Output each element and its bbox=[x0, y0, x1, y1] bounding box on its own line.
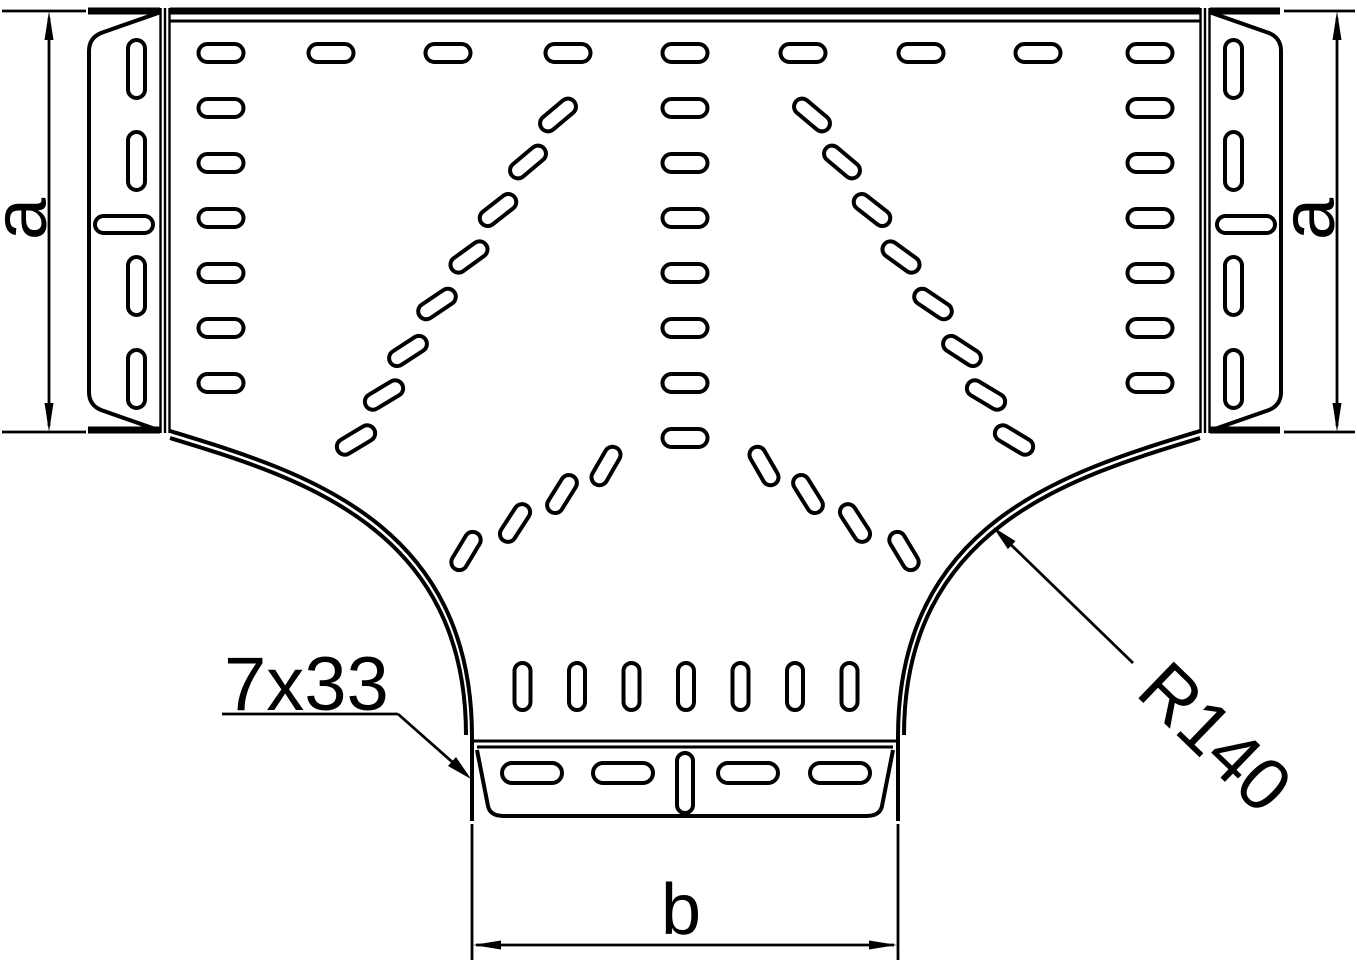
left-joint-lines bbox=[161, 8, 170, 433]
arrowhead-up bbox=[1333, 11, 1342, 40]
slot bbox=[386, 333, 430, 369]
slot bbox=[1225, 257, 1242, 315]
slot bbox=[1128, 319, 1173, 337]
slot bbox=[1128, 374, 1173, 392]
slot bbox=[787, 663, 803, 710]
tee-fitting-drawing: a a b 7x33 R140 bbox=[0, 0, 1357, 967]
slot bbox=[569, 663, 585, 710]
slot bbox=[791, 95, 833, 134]
slot bbox=[199, 264, 244, 282]
slot bbox=[1225, 132, 1242, 190]
dim-b-label: b bbox=[661, 870, 701, 950]
slot bbox=[911, 286, 955, 323]
slot bbox=[837, 501, 873, 545]
radius-callout-label: R140 bbox=[1123, 646, 1308, 829]
slot bbox=[128, 350, 145, 408]
slot bbox=[448, 529, 483, 573]
slot bbox=[309, 44, 354, 62]
right-diagonal-ray-slots bbox=[791, 95, 1036, 457]
right-fan-slots bbox=[747, 444, 922, 573]
callout-r140: R140 bbox=[993, 527, 1308, 828]
slot bbox=[546, 44, 591, 62]
slot bbox=[1128, 154, 1173, 172]
slot bbox=[502, 763, 562, 783]
arrowhead-left bbox=[473, 941, 501, 950]
arrowhead-right bbox=[869, 941, 897, 950]
slot bbox=[718, 763, 778, 783]
slot bbox=[733, 663, 749, 710]
slot bbox=[95, 216, 153, 233]
slot bbox=[1128, 264, 1173, 282]
slot bbox=[879, 238, 922, 276]
slot bbox=[1128, 209, 1173, 227]
slot bbox=[199, 99, 244, 117]
slot bbox=[515, 663, 531, 710]
slot bbox=[678, 663, 694, 710]
left-fan-slots bbox=[448, 444, 623, 573]
slot bbox=[842, 663, 858, 710]
slot bbox=[663, 429, 708, 447]
dim-a-right-label: a bbox=[1266, 197, 1351, 240]
slot bbox=[992, 422, 1036, 457]
right-joint-lines bbox=[1201, 8, 1210, 433]
slot bbox=[781, 44, 826, 62]
slot bbox=[415, 286, 459, 323]
slot bbox=[964, 377, 1008, 412]
slot bbox=[747, 444, 782, 488]
slot bbox=[199, 154, 244, 172]
left-end-flange bbox=[89, 12, 161, 431]
slot bbox=[334, 422, 378, 457]
left-column-slots bbox=[199, 99, 244, 392]
slot bbox=[899, 44, 944, 62]
slot bbox=[851, 191, 894, 229]
arrowhead-down bbox=[1333, 403, 1342, 432]
slot bbox=[663, 99, 708, 117]
slot bbox=[426, 44, 471, 62]
slot bbox=[663, 264, 708, 282]
slot bbox=[589, 444, 624, 488]
slot bbox=[1128, 99, 1173, 117]
left-diagonal-ray-slots bbox=[334, 95, 579, 457]
slot bbox=[477, 191, 520, 229]
dim-a-left-label: a bbox=[0, 197, 63, 240]
slot bbox=[1225, 350, 1242, 408]
slot bbox=[497, 501, 533, 545]
slot bbox=[199, 374, 244, 392]
callout-7x33: 7x33 bbox=[222, 642, 471, 779]
dimension-b: b bbox=[472, 824, 898, 960]
slot bbox=[128, 257, 145, 315]
slot bbox=[544, 472, 580, 516]
arrowhead-up bbox=[45, 11, 54, 40]
slot bbox=[886, 529, 921, 573]
slot bbox=[677, 753, 693, 813]
slot bbox=[199, 319, 244, 337]
slot bbox=[1225, 40, 1242, 98]
technical-drawing-page: a a b 7x33 R140 bbox=[0, 0, 1357, 967]
slot bbox=[810, 763, 870, 783]
slot bbox=[128, 132, 145, 190]
leader-line bbox=[1003, 537, 1133, 663]
slot bbox=[199, 44, 244, 62]
slot bbox=[537, 95, 579, 134]
arrowhead-down bbox=[45, 403, 54, 432]
center-column-slots bbox=[663, 99, 708, 447]
slot bbox=[362, 377, 406, 412]
slot bbox=[940, 333, 984, 369]
left-flange-plate bbox=[89, 12, 161, 431]
slot bbox=[1128, 44, 1173, 62]
slot bbox=[790, 472, 826, 516]
slot bbox=[593, 763, 653, 783]
slot bbox=[821, 142, 863, 181]
right-column-slots bbox=[1128, 99, 1173, 392]
slot bbox=[663, 44, 708, 62]
slot bbox=[663, 319, 708, 337]
slot bbox=[199, 209, 244, 227]
dimension-a-left: a bbox=[0, 11, 86, 432]
left-curve-outer bbox=[170, 431, 472, 821]
branch-floor-slots bbox=[515, 663, 858, 710]
branch-flange bbox=[472, 737, 898, 820]
top-row-slots bbox=[199, 44, 1173, 62]
right-curve-outer bbox=[898, 431, 1200, 821]
slot bbox=[663, 374, 708, 392]
perforation-callout-label: 7x33 bbox=[224, 642, 389, 727]
slot bbox=[1016, 44, 1061, 62]
slot bbox=[663, 209, 708, 227]
slot bbox=[447, 238, 490, 276]
slot bbox=[624, 663, 640, 710]
slot bbox=[128, 40, 145, 98]
slot bbox=[663, 154, 708, 172]
slot bbox=[507, 142, 549, 181]
